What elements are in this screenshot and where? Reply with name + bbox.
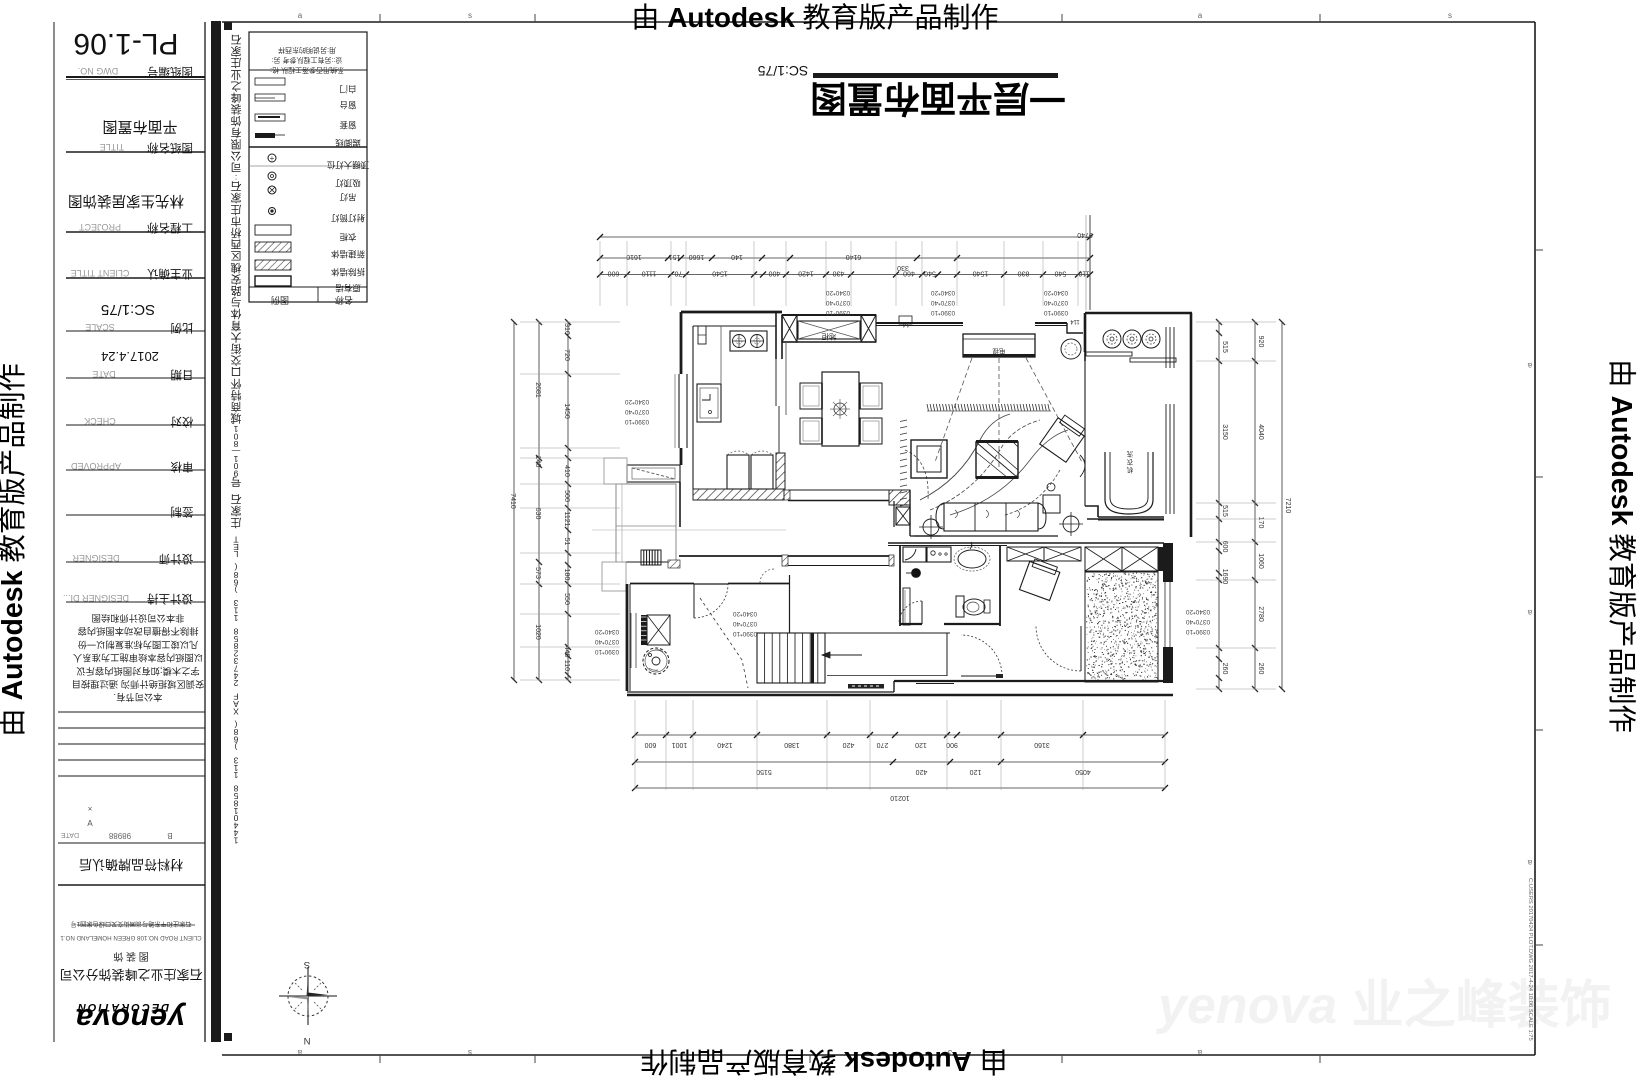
svg-text:电视: 电视: [992, 347, 1006, 356]
svg-text:N: N: [303, 1035, 310, 1046]
svg-text:字之木模;如有对图纸内容斥议: 字之木模;如有对图纸内容斥议: [76, 666, 200, 677]
svg-text:0340*20: 0340*20: [1186, 608, 1211, 615]
svg-text:日期: 日期: [171, 368, 194, 381]
svg-text:600: 600: [645, 741, 657, 748]
svg-text:×: ×: [87, 804, 92, 813]
svg-text:1540: 1540: [973, 270, 989, 277]
svg-text:城: 城: [231, 412, 242, 425]
svg-text:PL-1.06: PL-1.06: [73, 27, 178, 60]
svg-text:114: 114: [1070, 318, 1080, 324]
svg-text:CHECK: CHECK: [84, 416, 116, 426]
svg-text:0370*40: 0370*40: [625, 408, 650, 415]
svg-text:CLIENT TITLE: CLIENT TITLE: [71, 268, 130, 278]
svg-text:51: 51: [563, 538, 570, 546]
svg-text:SC:1/75: SC:1/75: [757, 63, 808, 79]
svg-text:630: 630: [534, 508, 541, 520]
svg-text:1001: 1001: [672, 741, 688, 748]
svg-text:600: 600: [1221, 541, 1228, 553]
svg-text:5150: 5150: [756, 768, 772, 775]
svg-text:1610: 1610: [626, 253, 642, 260]
svg-text:白门: 白门: [339, 84, 356, 94]
svg-text:0370*40: 0370*40: [826, 299, 851, 306]
svg-text:石: 石: [231, 493, 242, 505]
svg-text:0340*20: 0340*20: [1044, 289, 1069, 296]
svg-text:排除不得擅自改动本图纸内容: 排除不得擅自改动本图纸内容: [78, 626, 199, 637]
svg-text:0390*10: 0390*10: [931, 309, 956, 316]
svg-text:地柜: 地柜: [821, 332, 836, 342]
svg-text:0390*10: 0390*10: [1044, 309, 1069, 316]
svg-text:4040: 4040: [1257, 424, 1264, 440]
svg-text:顶棚大灯位: 顶棚大灯位: [326, 160, 369, 170]
svg-text:B: B: [167, 831, 172, 840]
svg-text:APPROVED: APPROVED: [70, 461, 121, 471]
svg-text:拆除墙体: 拆除墙体: [331, 267, 366, 277]
svg-text:∀: ∀: [87, 818, 93, 827]
svg-text:180: 180: [563, 569, 570, 581]
svg-text:平面布置图: 平面布置图: [102, 118, 177, 135]
svg-text:号: 号: [231, 475, 242, 488]
svg-text:审核: 审核: [170, 460, 193, 474]
svg-text:430: 430: [833, 270, 845, 277]
svg-text:1450: 1450: [563, 403, 570, 419]
svg-text:窗套: 窗套: [339, 120, 357, 130]
svg-text:图 装 饰: 图 装 饰: [113, 950, 149, 963]
svg-text:1240: 1240: [717, 741, 733, 748]
svg-text:桥: 桥: [231, 226, 242, 239]
svg-text:10210: 10210: [890, 794, 910, 801]
svg-text:500: 500: [563, 490, 570, 502]
svg-text:): ): [234, 585, 237, 595]
svg-text:路: 路: [231, 284, 242, 297]
svg-text:1380: 1380: [784, 741, 800, 748]
svg-text:515: 515: [1221, 505, 1228, 517]
svg-text:900: 900: [946, 741, 958, 748]
svg-text:庄: 庄: [231, 516, 242, 530]
svg-text:设计主持: 设计主持: [147, 592, 193, 606]
svg-text:420: 420: [916, 768, 928, 775]
svg-text:a: a: [1527, 858, 1532, 867]
svg-text:由 Autodesk 教育版产品制作: 由 Autodesk 教育版产品制作: [0, 363, 29, 737]
svg-text:120: 120: [915, 741, 927, 748]
svg-text:0390*10: 0390*10: [625, 418, 650, 425]
svg-text:170: 170: [1257, 517, 1264, 529]
svg-text:720: 720: [563, 349, 570, 361]
svg-text:400: 400: [769, 270, 781, 277]
svg-text:600: 600: [608, 270, 620, 277]
svg-text:区: 区: [231, 249, 242, 261]
svg-text:图例: 图例: [271, 295, 289, 306]
svg-text:0370*40: 0370*40: [931, 299, 956, 306]
svg-text:DECORATION: DECORATION: [76, 1001, 169, 1013]
svg-text:2780: 2780: [1257, 606, 1264, 622]
svg-text:与: 与: [231, 296, 242, 309]
svg-text:420: 420: [843, 741, 855, 748]
svg-text:1: 1: [233, 835, 238, 845]
svg-text:司: 司: [231, 161, 242, 173]
svg-text:石: 石: [231, 33, 242, 45]
svg-text:DATE: DATE: [92, 369, 115, 379]
svg-text:由 Autodesk 教育版产品制作: 由 Autodesk 教育版产品制作: [631, 2, 998, 33]
svg-text:1540: 1540: [712, 270, 728, 277]
svg-text:540: 540: [924, 270, 936, 277]
svg-text:用:另说明的东西样: 用:另说明的东西样: [278, 46, 336, 55]
svg-text:一层平面布置图: 一层平面布置图: [810, 78, 1066, 119]
svg-text:0390*10: 0390*10: [826, 309, 851, 316]
svg-text:公: 公: [231, 149, 242, 161]
svg-text:330: 330: [897, 264, 909, 271]
svg-text:1: 1: [233, 613, 238, 623]
svg-text:6140: 6140: [846, 253, 862, 260]
svg-text:TITLE: TITLE: [100, 142, 125, 152]
svg-text:260: 260: [1257, 663, 1264, 675]
svg-text:7210: 7210: [1284, 498, 1291, 514]
svg-text:410: 410: [563, 465, 570, 477]
svg-text:X: X: [233, 706, 239, 716]
svg-text:机: 机: [1126, 466, 1133, 475]
svg-text:1: 1: [233, 770, 238, 780]
svg-text:7410: 7410: [509, 493, 516, 509]
svg-text:110: 110: [563, 660, 570, 671]
svg-text:限: 限: [231, 137, 242, 150]
svg-text:林先生家居装饰图: 林先生家居装饰图: [68, 192, 184, 209]
svg-text:工程名称: 工程名称: [147, 221, 193, 235]
svg-text:非本公司设计师和绘图: 非本公司设计师和绘图: [92, 613, 185, 624]
svg-text:1121: 1121: [563, 511, 570, 526]
svg-text:签制: 签制: [171, 505, 194, 519]
svg-text:SC:1/75: SC:1/75: [101, 301, 155, 318]
svg-text:a: a: [1527, 361, 1532, 370]
svg-text:0390*10: 0390*10: [595, 648, 620, 655]
svg-text:110: 110: [1078, 270, 1089, 277]
svg-text:安调区域拒绝计师沟 通过理按目: 安调区域拒绝计师沟 通过理按目: [72, 679, 205, 690]
svg-text:920: 920: [1257, 336, 1264, 348]
svg-text:DESIGNER DI...: DESIGNER DI...: [63, 593, 129, 603]
svg-text:S: S: [304, 959, 310, 970]
svg-text:a: a: [1197, 1048, 1202, 1057]
svg-text:图纸编号: 图纸编号: [147, 65, 193, 79]
svg-text:SCALE: SCALE: [85, 322, 115, 332]
svg-text:140: 140: [534, 456, 541, 468]
svg-text:射灯筒灯: 射灯筒灯: [331, 213, 366, 223]
svg-text:yenova 业之峰装饰: yenova 业之峰装饰: [1155, 977, 1612, 1035]
svg-text:550: 550: [563, 593, 570, 605]
svg-text:由 Autodesk 教育版产品制作: 由 Autodesk 教育版产品制作: [640, 1046, 1007, 1077]
svg-text:L: L: [233, 549, 238, 559]
svg-text:0340*20: 0340*20: [826, 289, 851, 296]
svg-text:a: a: [1198, 11, 1203, 20]
svg-text:a: a: [298, 11, 303, 20]
svg-text:): ): [234, 742, 237, 752]
svg-text:0340*20: 0340*20: [595, 628, 620, 635]
svg-text:0390*10: 0390*10: [733, 630, 758, 637]
svg-text:PROJECT: PROJECT: [79, 222, 122, 232]
svg-text:3150: 3150: [1221, 424, 1228, 440]
svg-text:0340*20: 0340*20: [733, 610, 758, 617]
svg-text:设::另有工程队参考 另:: 设::另有工程队参考 另:: [272, 56, 343, 65]
svg-text:2681: 2681: [534, 382, 541, 398]
svg-text:石家庄业之峰装饰分公司: 石家庄业之峰装饰分公司: [59, 967, 202, 982]
svg-text:衣: 衣: [1126, 458, 1133, 467]
svg-text:440: 440: [563, 646, 570, 658]
svg-text:0370*40: 0370*40: [1186, 618, 1211, 625]
svg-text:14: 14: [902, 321, 909, 327]
svg-text:s: s: [468, 11, 472, 20]
svg-text:540: 540: [1055, 270, 1067, 277]
svg-text:0370*40: 0370*40: [733, 620, 758, 627]
svg-text:70: 70: [675, 270, 683, 277]
svg-text:本公司节有.: 本公司节有.: [113, 692, 162, 703]
svg-text:怀: 怀: [231, 377, 242, 390]
svg-text:1110: 1110: [642, 270, 657, 277]
svg-text:0370*40: 0370*40: [1044, 299, 1069, 306]
svg-text:270: 270: [877, 741, 889, 748]
svg-text:2017.4.24: 2017.4.24: [101, 349, 159, 364]
svg-text:830: 830: [1018, 270, 1030, 277]
svg-text:DWG NO.: DWG NO.: [78, 66, 119, 76]
svg-text:1020: 1020: [534, 624, 541, 640]
svg-text:140: 140: [731, 253, 743, 260]
svg-text:由 Autodesk 教育版产品制作: 由 Autodesk 教育版产品制作: [1605, 359, 1637, 733]
svg-text:0390*10: 0390*10: [1186, 628, 1211, 635]
svg-text:DATE: DATE: [61, 831, 79, 838]
svg-text:石家庄和平东路与谈固街交叉口绿色家园1号: 石家庄和平东路与谈固街交叉口绿色家园1号: [70, 920, 191, 928]
svg-text:98988: 98988: [108, 831, 131, 840]
svg-text:吊灯: 吊灯: [339, 192, 357, 202]
svg-text:图纸名称: 图纸名称: [147, 141, 193, 155]
svg-text:1420: 1420: [798, 270, 814, 277]
svg-text:s: s: [468, 1048, 472, 1057]
svg-text:1060: 1060: [1257, 553, 1264, 569]
svg-text:DESIGNER: DESIGNER: [72, 553, 120, 563]
svg-text:装: 装: [231, 103, 242, 116]
svg-text:洗: 洗: [1126, 450, 1133, 459]
svg-text:a: a: [297, 1048, 302, 1057]
svg-text:业主确认: 业主确认: [147, 267, 193, 280]
svg-text:0340*20: 0340*20: [625, 398, 650, 405]
svg-text:西: 西: [231, 238, 242, 250]
svg-text:比例: 比例: [171, 321, 194, 335]
svg-text:凡以竣工图为标准复制以一份: 凡以竣工图为标准复制以一份: [77, 639, 199, 650]
svg-text:新建墙体: 新建墙体: [331, 249, 366, 259]
svg-text:120: 120: [970, 768, 982, 775]
svg-text:+: +: [270, 154, 275, 163]
svg-text:310: 310: [563, 323, 570, 335]
svg-text:s: s: [1448, 11, 1452, 20]
svg-text:踢脚线: 踢脚线: [335, 138, 361, 148]
svg-text:3160: 3160: [1034, 741, 1050, 748]
svg-text:名称: 名称: [335, 295, 353, 306]
svg-text:衣柜: 衣柜: [339, 232, 357, 242]
svg-text:石: 石: [231, 180, 242, 192]
svg-text:260: 260: [1221, 663, 1228, 675]
svg-text:峰: 峰: [231, 91, 242, 104]
svg-text:1690: 1690: [1221, 569, 1228, 585]
svg-text:以图纸内容本绘审施工为准系人: 以图纸内容本绘审施工为准系人: [73, 653, 203, 664]
svg-text:原有墙: 原有墙: [335, 283, 361, 293]
svg-text:口: 口: [231, 365, 242, 377]
svg-text:吸顶灯: 吸顶灯: [335, 178, 361, 188]
svg-text:515: 515: [1221, 341, 1228, 353]
svg-text:573: 573: [534, 567, 541, 579]
svg-text:校对: 校对: [170, 415, 193, 429]
svg-text:业: 业: [231, 68, 242, 81]
svg-text:0370*40: 0370*40: [595, 638, 620, 645]
svg-text:设计师: 设计师: [159, 552, 194, 565]
svg-text:0340*20: 0340*20: [931, 289, 956, 296]
svg-text:151: 151: [669, 253, 681, 260]
svg-text:CLIENT ROAD NO.108 GREEN HOMEL: CLIENT ROAD NO.108 GREEN HOMELAND NO.1: [60, 934, 202, 941]
svg-text:1660: 1660: [689, 253, 705, 260]
svg-text:2: 2: [233, 678, 238, 688]
svg-text:a: a: [1527, 608, 1532, 617]
svg-text:窗台: 窗台: [339, 100, 356, 110]
svg-text:材料符品牌确认后: 材料符品牌确认后: [79, 857, 183, 872]
svg-text:系统用否参落工程队 格:: 系统用否参落工程队 格:: [270, 66, 344, 75]
